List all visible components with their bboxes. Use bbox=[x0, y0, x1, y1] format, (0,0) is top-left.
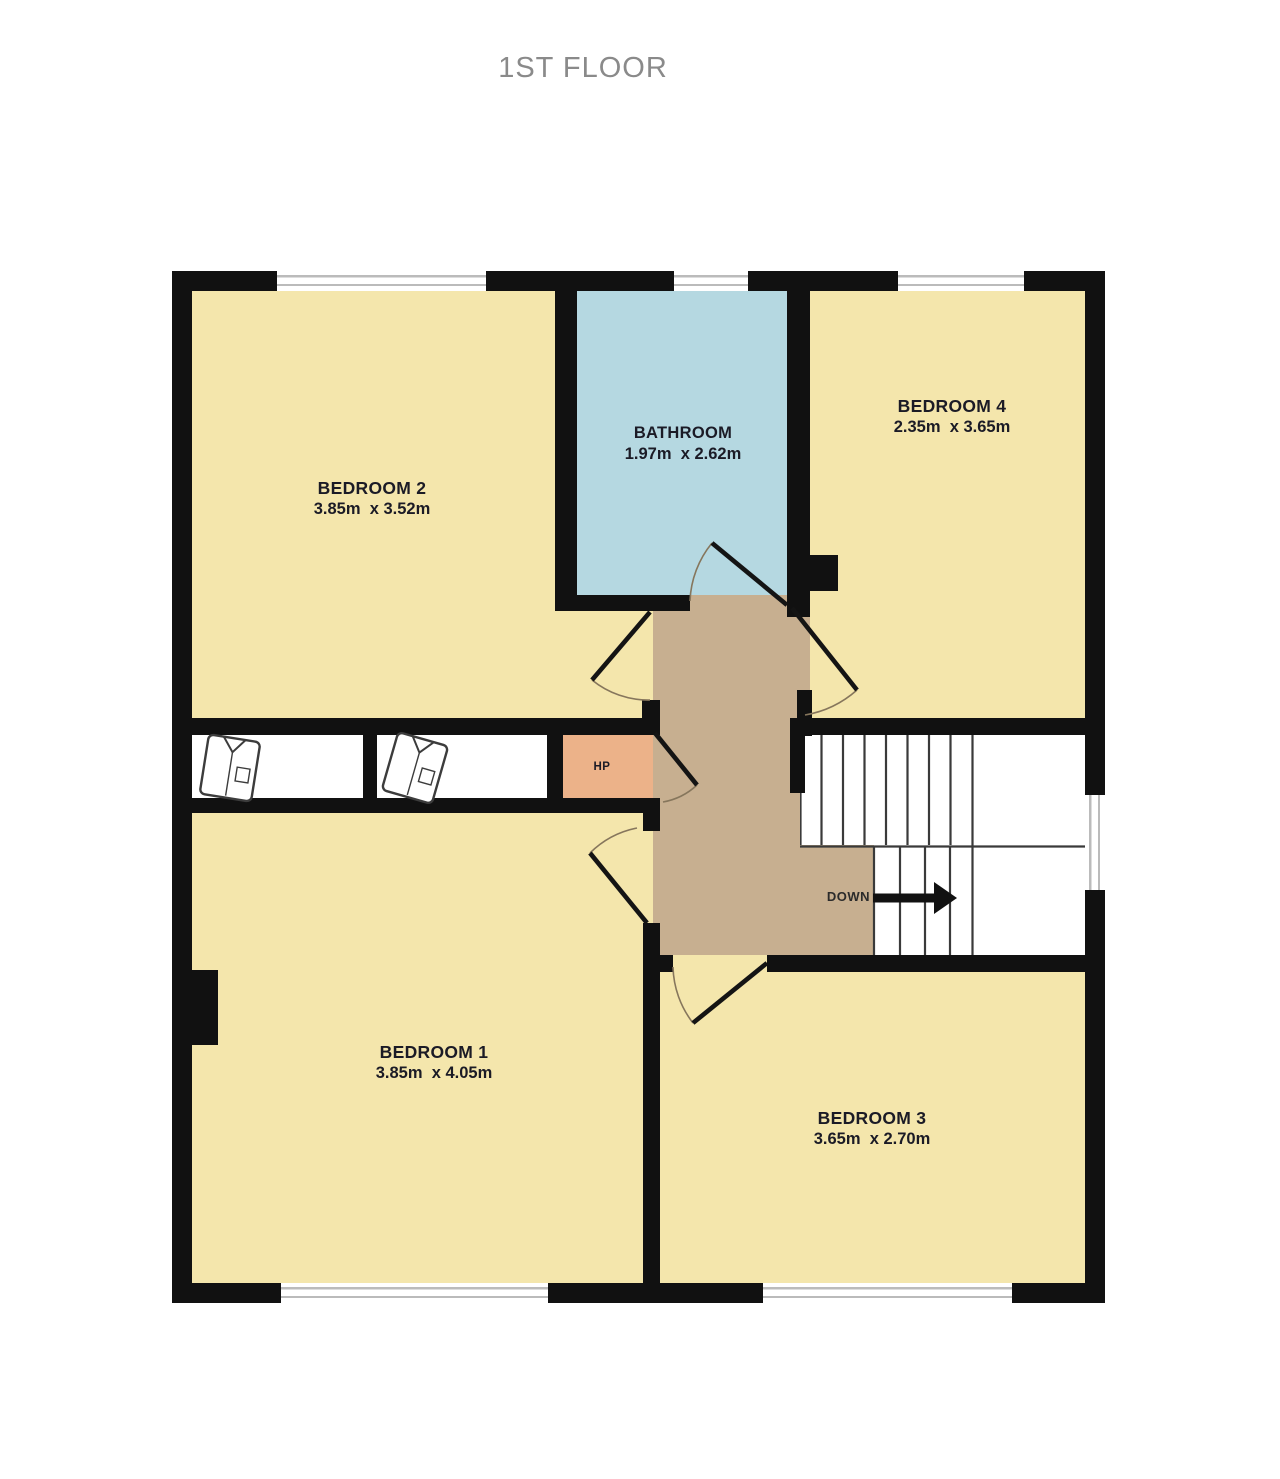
room-name: BATHROOM bbox=[573, 423, 793, 444]
bedroom4-label: BEDROOM 4 2.35m x 3.65m bbox=[822, 395, 1082, 439]
floor-plan: BEDROOM 2 3.85m x 3.52m BATHROOM 1.97m x… bbox=[172, 271, 1105, 1303]
bedroom2-door-leaf bbox=[592, 612, 650, 680]
bathroom-label: BATHROOM 1.97m x 2.62m bbox=[573, 423, 793, 465]
hot-press-door-arc bbox=[663, 785, 697, 802]
bathroom-door-leaf bbox=[712, 543, 787, 605]
bedroom4-door-arc bbox=[805, 690, 857, 715]
room-name: BEDROOM 2 bbox=[232, 477, 512, 499]
room-name: BEDROOM 3 bbox=[722, 1107, 1022, 1129]
room-name: BEDROOM 4 bbox=[822, 395, 1082, 417]
door-arcs bbox=[590, 543, 857, 1023]
bedroom2-label: BEDROOM 2 3.85m x 3.52m bbox=[232, 477, 512, 521]
bedroom1-label: BEDROOM 1 3.85m x 4.05m bbox=[284, 1041, 584, 1085]
hot-press-label: HP bbox=[571, 760, 633, 775]
door-leaves bbox=[590, 543, 857, 1023]
room-name: HP bbox=[594, 761, 611, 773]
bedroom3-door-arc bbox=[673, 967, 693, 1023]
bedroom1-door-leaf bbox=[590, 853, 647, 923]
room-dimensions: 2.35m x 3.65m bbox=[822, 417, 1082, 438]
stairs-down-label: DOWN bbox=[790, 889, 870, 906]
bathroom-door-arc bbox=[690, 543, 712, 601]
stairs-direction: DOWN bbox=[827, 889, 870, 904]
shirt-icon bbox=[382, 732, 449, 804]
shirt-icon bbox=[200, 734, 261, 801]
bedroom2-door-arc bbox=[592, 680, 650, 700]
down-arrow-icon bbox=[873, 882, 957, 914]
hot-press-door-leaf bbox=[655, 733, 697, 785]
bedroom1-door-arc bbox=[590, 828, 637, 853]
bedroom4-door-leaf bbox=[792, 608, 857, 690]
room-dimensions: 3.65m x 2.70m bbox=[722, 1129, 1022, 1150]
room-dimensions: 3.85m x 4.05m bbox=[284, 1063, 584, 1084]
room-dimensions: 1.97m x 2.62m bbox=[573, 444, 793, 465]
floor-title: 1ST FLOOR bbox=[433, 52, 733, 85]
room-dimensions: 3.85m x 3.52m bbox=[232, 499, 512, 520]
bedroom3-door-leaf bbox=[693, 963, 767, 1023]
room-name: BEDROOM 1 bbox=[284, 1041, 584, 1063]
bedroom3-label: BEDROOM 3 3.65m x 2.70m bbox=[722, 1107, 1022, 1151]
